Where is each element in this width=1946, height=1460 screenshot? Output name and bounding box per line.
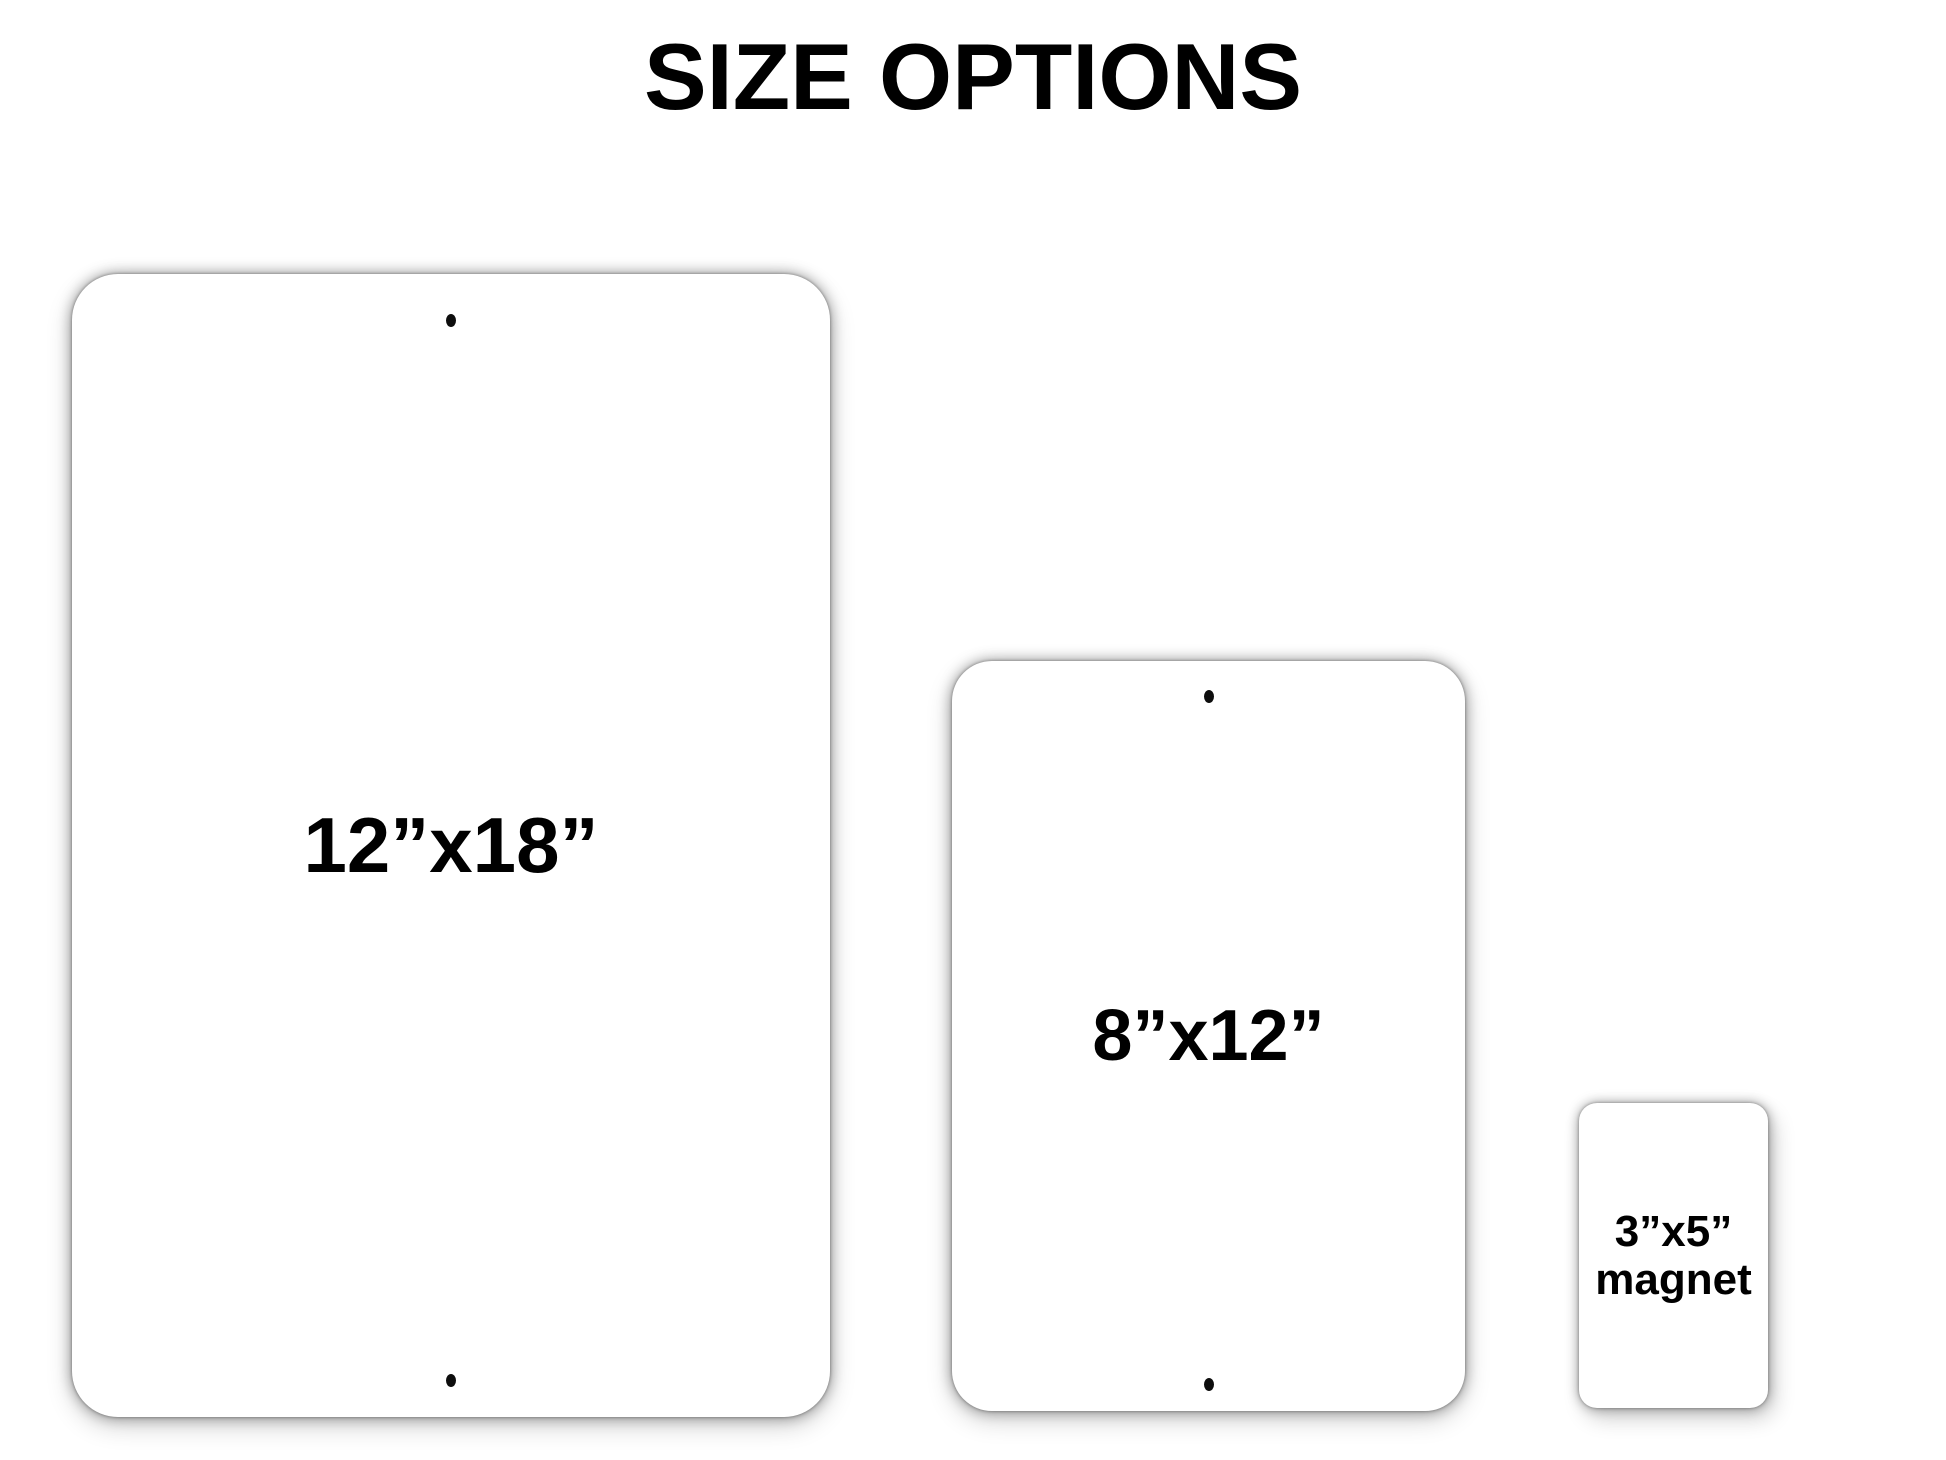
mounting-hole-top-icon xyxy=(446,314,456,327)
sign-12x18: 12”x18” xyxy=(72,274,830,1417)
mounting-hole-bottom-icon xyxy=(1204,1378,1214,1391)
sign-8x12: 8”x12” xyxy=(952,661,1465,1411)
mounting-hole-bottom-icon xyxy=(446,1374,456,1387)
magnet-3x5: 3”x5” magnet xyxy=(1579,1103,1768,1408)
size-options-graphic: SIZE OPTIONS 12”x18” 8”x12” 3”x5” magnet xyxy=(0,0,1946,1460)
magnet-label-size: 3”x5” xyxy=(1595,1208,1751,1256)
magnet-label-word: magnet xyxy=(1595,1256,1751,1304)
sign-8x12-label: 8”x12” xyxy=(1092,995,1324,1077)
magnet-3x5-label: 3”x5” magnet xyxy=(1595,1208,1751,1303)
page-title: SIZE OPTIONS xyxy=(0,30,1946,124)
sign-12x18-label: 12”x18” xyxy=(304,800,599,891)
mounting-hole-top-icon xyxy=(1204,690,1214,703)
